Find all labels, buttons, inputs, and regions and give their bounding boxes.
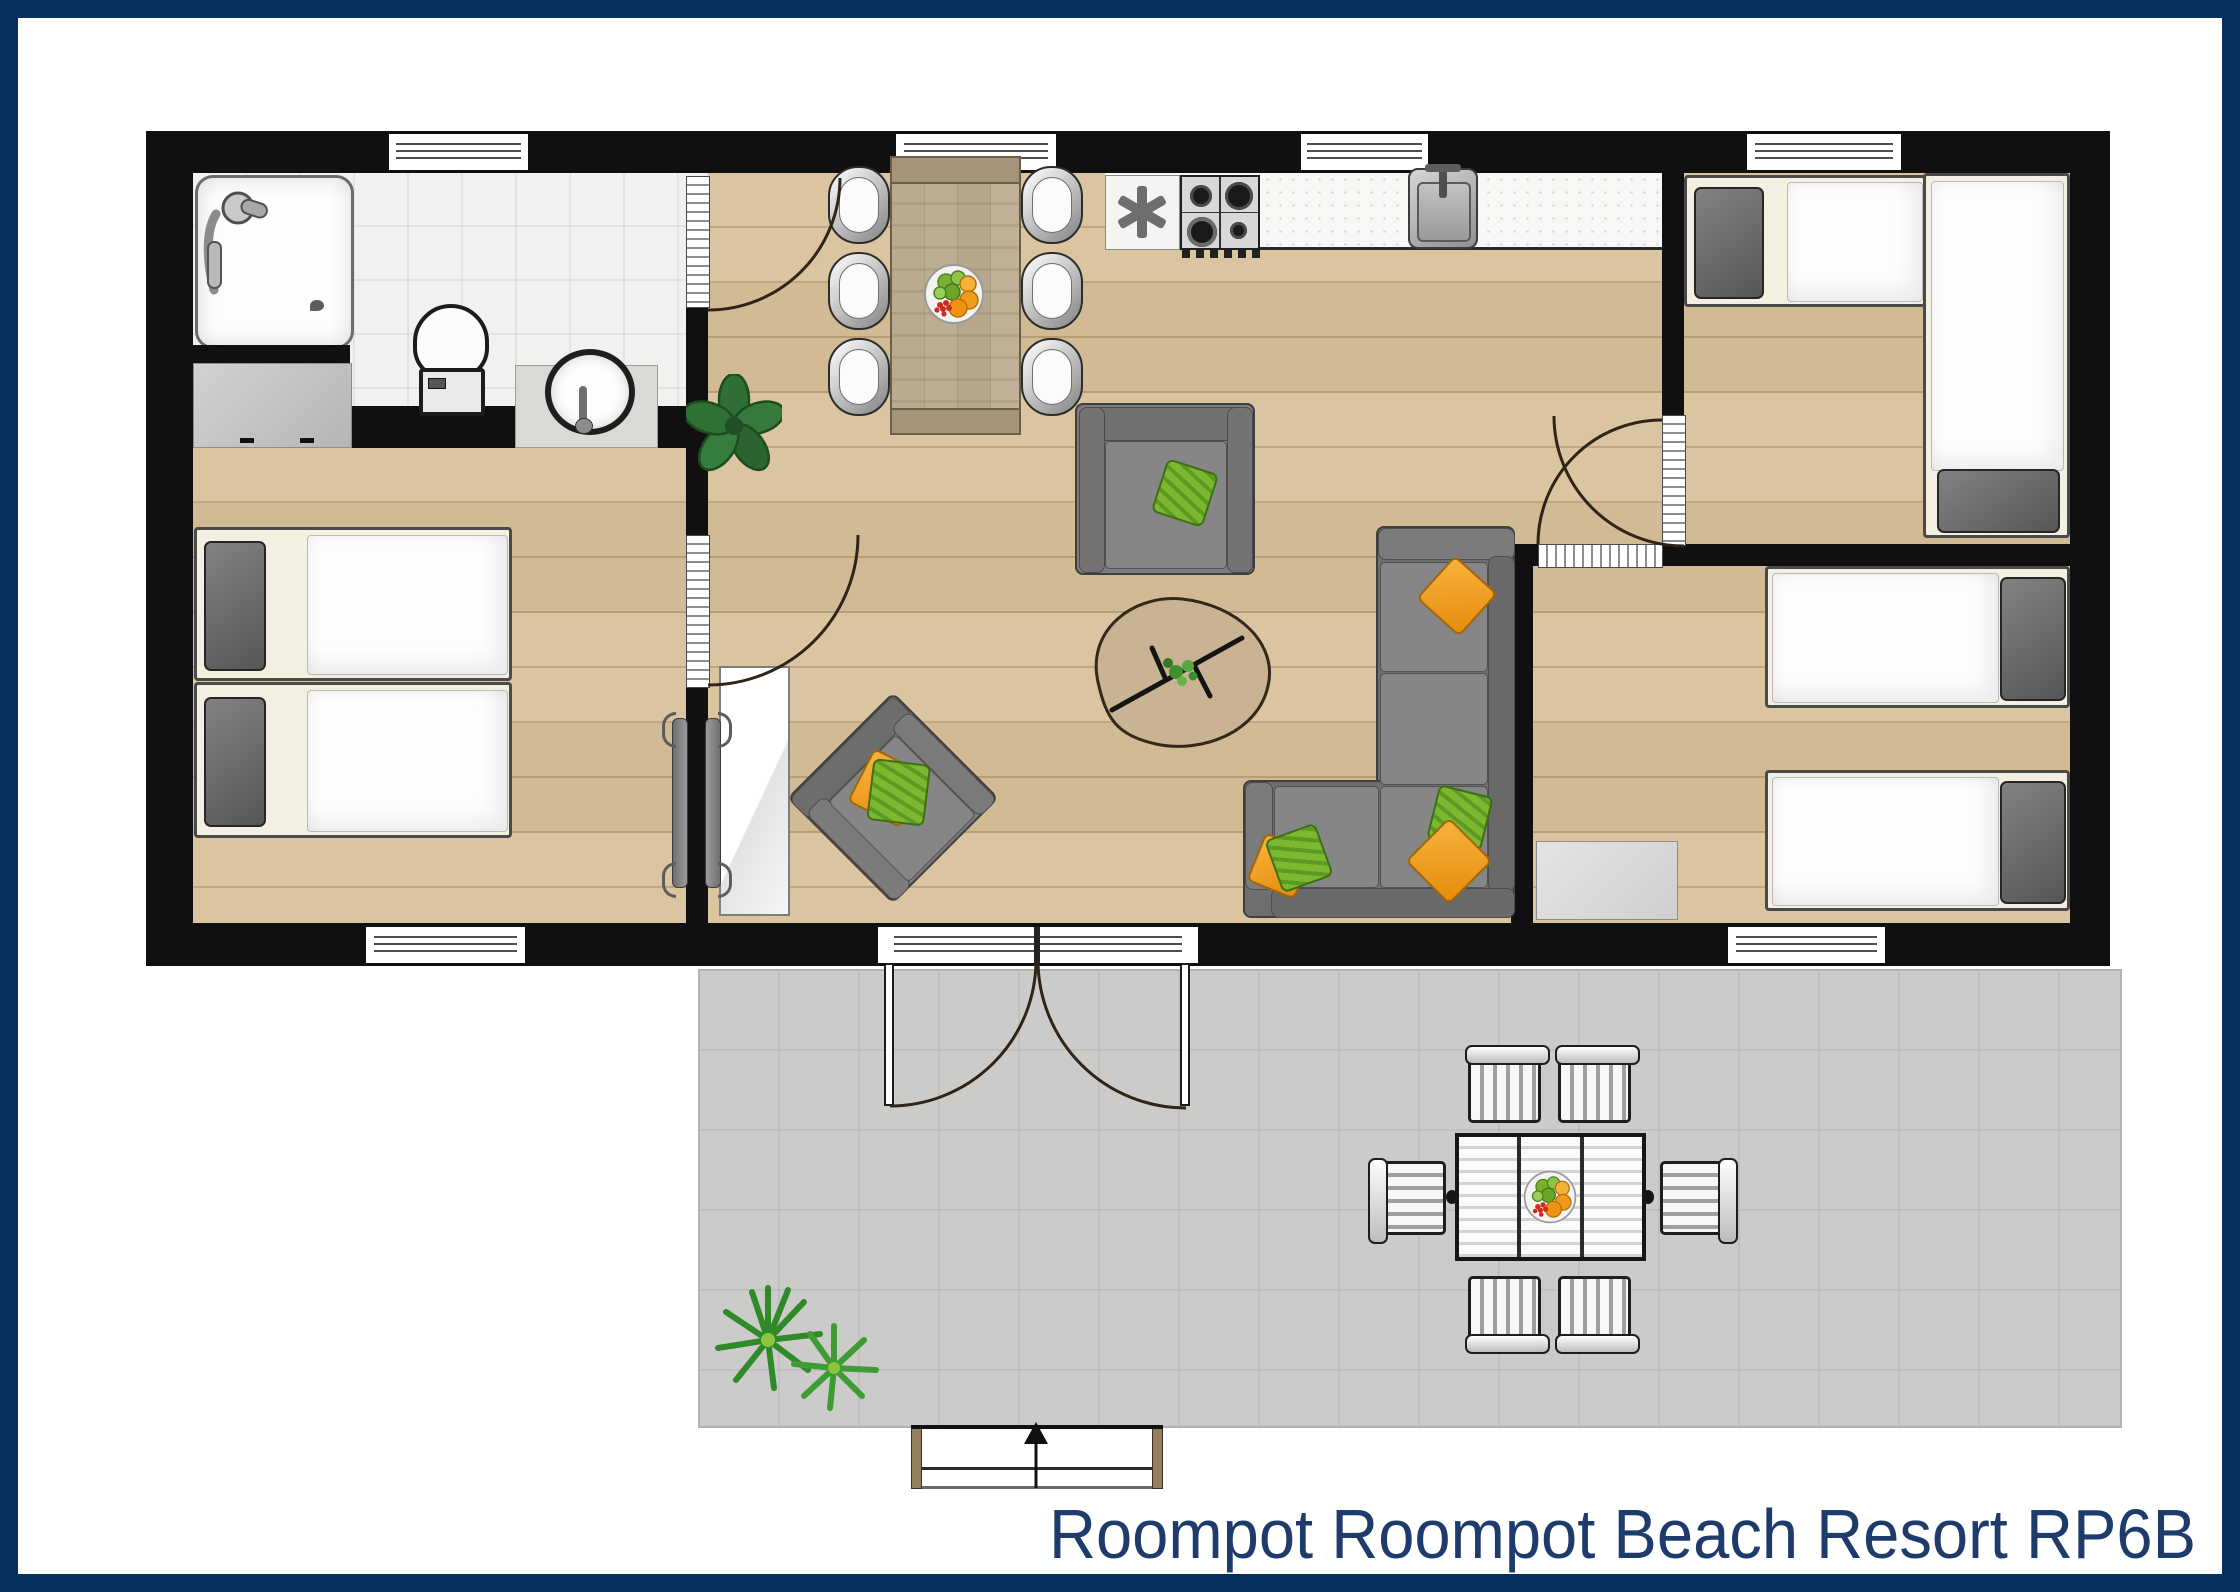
- terrace-chair-left: [1373, 1161, 1446, 1235]
- bed-left-2: [194, 682, 512, 838]
- kitchen-sink: [1408, 168, 1478, 249]
- burner-1: [1190, 185, 1212, 207]
- terrace-fern-icon: [706, 1270, 896, 1418]
- terrace-table-divider-2: [1580, 1137, 1584, 1257]
- bed-left-1: [194, 527, 512, 681]
- armchair-arm-right: [1227, 407, 1253, 573]
- shower-screen: [193, 345, 350, 363]
- table-end-bottom: [892, 408, 1019, 433]
- bathroom-cabinet: [193, 363, 352, 448]
- terrace-door-left-leaf: [884, 963, 894, 1106]
- fruit-bowl-icon: [922, 262, 986, 326]
- terrace-chair-backrest: [1368, 1158, 1388, 1244]
- burner-2: [1225, 182, 1253, 210]
- terrace-doors-center-post: [1034, 927, 1040, 963]
- sofa-back-bottom: [1271, 888, 1515, 918]
- table-end-top: [892, 158, 1019, 184]
- sink-faucet-knob: [575, 418, 593, 434]
- freezer-unit: [1105, 175, 1180, 250]
- dining-chair-left-3: [828, 338, 890, 416]
- wall-right: [2070, 131, 2110, 966]
- bedroom1-bed-right-duvet: [1931, 181, 2064, 471]
- bedroom2-door: [1538, 544, 1663, 568]
- terrace-table-clamp-right: [1642, 1190, 1654, 1204]
- terrace-chair-right: [1660, 1161, 1733, 1235]
- burner-3: [1187, 217, 1217, 247]
- terrace-chair-top-2: [1558, 1050, 1631, 1123]
- terrace-chair-bottom-1: [1468, 1276, 1541, 1349]
- step-rail-left: [911, 1425, 922, 1489]
- bed-left-2-pillow: [204, 697, 266, 827]
- shower-drain: [310, 300, 324, 311]
- freezer-star-icon: [1106, 176, 1179, 249]
- terrace-chair-bottom-2: [1558, 1276, 1631, 1349]
- bed-left-1-duvet: [307, 535, 508, 675]
- burner-4: [1230, 222, 1247, 239]
- lounge-pillow-green: [866, 758, 931, 827]
- dining-chair-left-2: [828, 252, 890, 330]
- bedroom1-bed-top-pillow: [1694, 187, 1764, 299]
- floor-plan: Roompot Roompot Beach Resort RP6B: [0, 0, 2240, 1592]
- terrace-chair-top-1: [1468, 1050, 1541, 1123]
- wall-left: [146, 131, 193, 966]
- bedroom2-bed-1: [1765, 566, 2070, 708]
- kitchen-faucet-bar: [1425, 164, 1461, 172]
- bed-left-1-pillow: [204, 541, 266, 671]
- sink-faucet: [579, 386, 587, 422]
- terrace-table-divider-1: [1517, 1137, 1521, 1257]
- sofa-back-right: [1488, 556, 1515, 892]
- dining-chair-right-1: [1021, 166, 1083, 244]
- window-bathroom: [389, 134, 528, 170]
- shower-head-icon: [200, 180, 280, 300]
- wall-bedrooms-divider-b: [1661, 544, 2070, 566]
- dining-chair-left-1: [828, 166, 890, 244]
- fruit-bowl-icon: [1522, 1169, 1578, 1225]
- wall-kitchen-bedroom: [1662, 173, 1684, 415]
- gas-hob: [1180, 175, 1260, 250]
- bathroom-door: [686, 176, 710, 308]
- window-bedroom-left: [366, 927, 525, 963]
- plant-icon: [686, 374, 782, 478]
- terrace-table-clamp-left: [1446, 1190, 1458, 1204]
- coffee-table: [1070, 586, 1290, 760]
- cabinet-handle-1: [240, 438, 254, 443]
- bedroom1-door: [1662, 415, 1686, 546]
- terrace-chair-backrest: [1555, 1334, 1640, 1354]
- tv-bedroom-bracket-top: [662, 712, 676, 748]
- bedroom2-bed-2-duvet: [1772, 777, 1999, 906]
- wall-bedrooms-divider-a: [1511, 544, 1538, 566]
- toilet-flush-button: [428, 378, 446, 389]
- tv-bedroom-bracket-bottom: [662, 862, 676, 898]
- dining-chair-right-2: [1021, 252, 1083, 330]
- entrance-arrow-icon: [1017, 1418, 1055, 1490]
- window-kitchen: [1301, 134, 1428, 170]
- terrace-chair-backrest: [1465, 1045, 1550, 1065]
- bedroom2-bed-1-pillow: [2000, 577, 2066, 701]
- bedroom2-bed-1-duvet: [1772, 573, 1999, 703]
- bedroom2-cabinet: [1536, 841, 1678, 920]
- bedroom1-bed-top-duvet: [1787, 182, 1923, 302]
- sofa-cushion-2: [1380, 673, 1488, 785]
- armchair-arm-left: [1079, 407, 1105, 573]
- bed-left-2-duvet: [307, 690, 508, 832]
- cabinet-handle-2: [300, 438, 314, 443]
- hob-knobs: [1182, 250, 1260, 258]
- dining-chair-right-3: [1021, 338, 1083, 416]
- page-title: Roompot Roompot Beach Resort RP6B: [691, 1494, 2196, 1574]
- window-bedroom2: [1728, 927, 1885, 963]
- terrace-chair-backrest: [1555, 1045, 1640, 1065]
- bedroom1-bed-right-pillow: [1937, 469, 2060, 533]
- bedroom1-bed-top: [1684, 175, 1926, 307]
- terrace-chair-backrest: [1465, 1334, 1550, 1354]
- bedroom-left-door: [686, 535, 710, 688]
- bedroom2-bed-2-pillow: [2000, 781, 2066, 904]
- bedroom1-bed-right: [1923, 173, 2070, 538]
- terrace-chair-backrest: [1718, 1158, 1738, 1244]
- window-bedroom1: [1747, 134, 1901, 170]
- step-rail-right: [1152, 1425, 1163, 1489]
- toilet-tank: [419, 368, 485, 416]
- terrace-door-right-leaf: [1180, 963, 1190, 1106]
- bedroom2-bed-2: [1765, 770, 2070, 911]
